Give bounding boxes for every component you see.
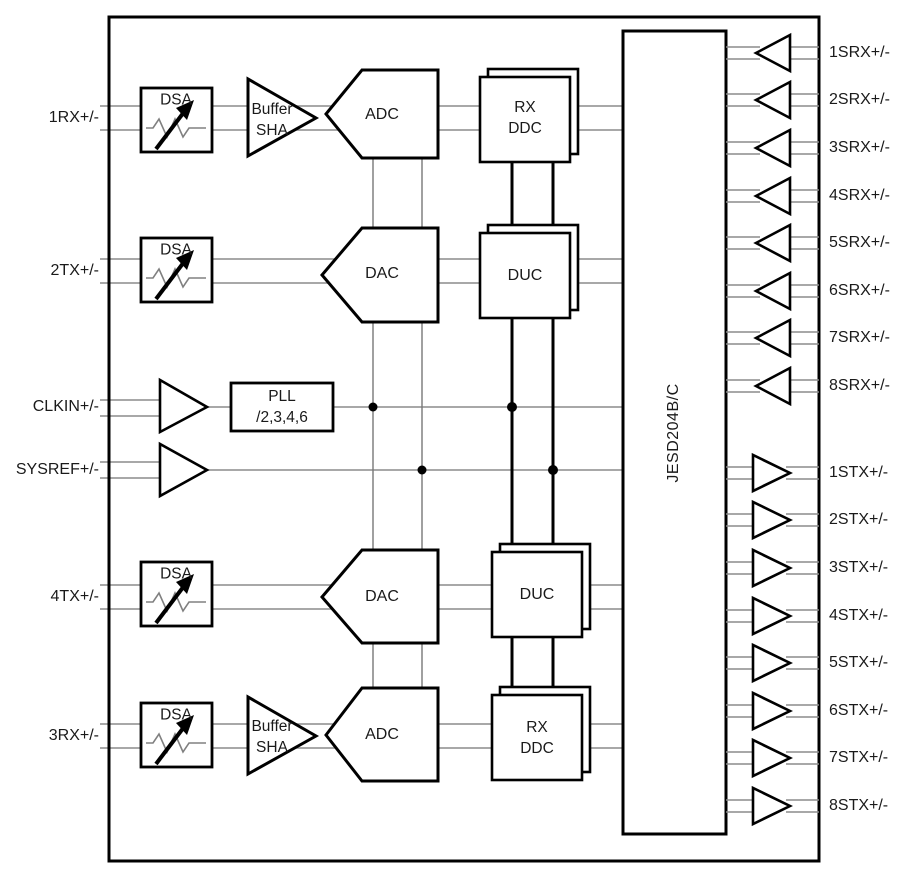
pin-label-4stx: 4STX+/- [829,608,888,624]
adc-label-top: ADC [365,107,399,123]
srx-pin-7 [726,320,819,356]
pin-label-1srx: 1SRX+/- [829,45,890,61]
diagram-canvas [0,0,900,874]
buffer-sha-label-line2: SHA [251,120,292,141]
stx-pin-7 [726,740,819,776]
rx-ddc-label-bottom: RX DDC [520,717,554,759]
dsa-label-3: DSA [160,566,192,582]
srx-pin-2 [726,82,819,118]
pin-label-3srx: 3SRX+/- [829,140,890,156]
stx-pin-8 [726,788,819,824]
srx-pin-6 [726,273,819,309]
pin-label-2tx: 2TX+/- [51,263,99,279]
rx-ddc-label-line1: RX [508,97,542,118]
pin-label-1rx: 1RX+/- [49,110,99,126]
dac-label-bottom: DAC [365,589,399,605]
pin-label-8srx: 8SRX+/- [829,378,890,394]
pin-label-3stx: 3STX+/- [829,560,888,576]
pin-label-clkin: CLKIN+/- [33,399,99,415]
stx-pin-6 [726,693,819,729]
stx-pin-3 [726,550,819,586]
adc-label-bottom: ADC [365,727,399,743]
pin-label-5srx: 5SRX+/- [829,235,890,251]
pin-label-2stx: 2STX+/- [829,512,888,528]
buffer-sha-label-2: Buffer SHA [251,716,292,758]
pin-label-2srx: 2SRX+/- [829,92,890,108]
rx-ddc-label-line2: DDC [508,118,542,139]
pin-label-7srx: 7SRX+/- [829,330,890,346]
pin-label-6srx: 6SRX+/- [829,283,890,299]
pin-label-8stx: 8STX+/- [829,798,888,814]
pin-label-4srx: 4SRX+/- [829,188,890,204]
buffer-sha-label-line1: Buffer [251,99,292,120]
duc-label-top: DUC [508,268,543,284]
buffer-sha-label-line1: Buffer [251,716,292,737]
pin-label-3rx: 3RX+/- [49,728,99,744]
duc-label-bottom: DUC [520,587,555,603]
pll-label-line2: /2,3,4,6 [256,407,308,428]
pll-label-line1: PLL [256,386,308,407]
transceiver-block-diagram: 1RX+/- 2TX+/- CLKIN+/- SYSREF+/- 4TX+/- … [0,0,900,874]
pin-label-1stx: 1STX+/- [829,465,888,481]
clkin-buffer-triangle [160,380,207,432]
pll-label: PLL /2,3,4,6 [256,386,308,428]
stx-pin-2 [726,502,819,538]
dac-label-top: DAC [365,266,399,282]
pin-label-4tx: 4TX+/- [51,589,99,605]
srx-pin-5 [726,225,819,261]
buffer-sha-label-line2: SHA [251,737,292,758]
stx-pin-5 [726,645,819,681]
jesd-label: JESD204B/C [666,383,682,482]
pin-label-7stx: 7STX+/- [829,750,888,766]
rx-ddc-label-line2: DDC [520,738,554,759]
srx-pin-8 [726,368,819,404]
stx-pin-4 [726,598,819,634]
dsa-label-1: DSA [160,92,192,108]
pin-label-sysref: SYSREF+/- [16,462,99,478]
srx-pin-1 [726,35,819,71]
pin-label-5stx: 5STX+/- [829,655,888,671]
srx-pin-3 [726,130,819,166]
signal-lines [100,106,623,748]
sysref-buffer-triangle [160,444,207,496]
rx-ddc-label-line1: RX [520,717,554,738]
dsa-label-4: DSA [160,707,192,723]
junction-dots [369,402,559,475]
rx-ddc-label-top: RX DDC [508,97,542,139]
srx-pin-4 [726,178,819,214]
stx-pin-1 [726,455,819,491]
buffer-sha-label-1: Buffer SHA [251,99,292,141]
pin-label-6stx: 6STX+/- [829,703,888,719]
dsa-label-2: DSA [160,242,192,258]
